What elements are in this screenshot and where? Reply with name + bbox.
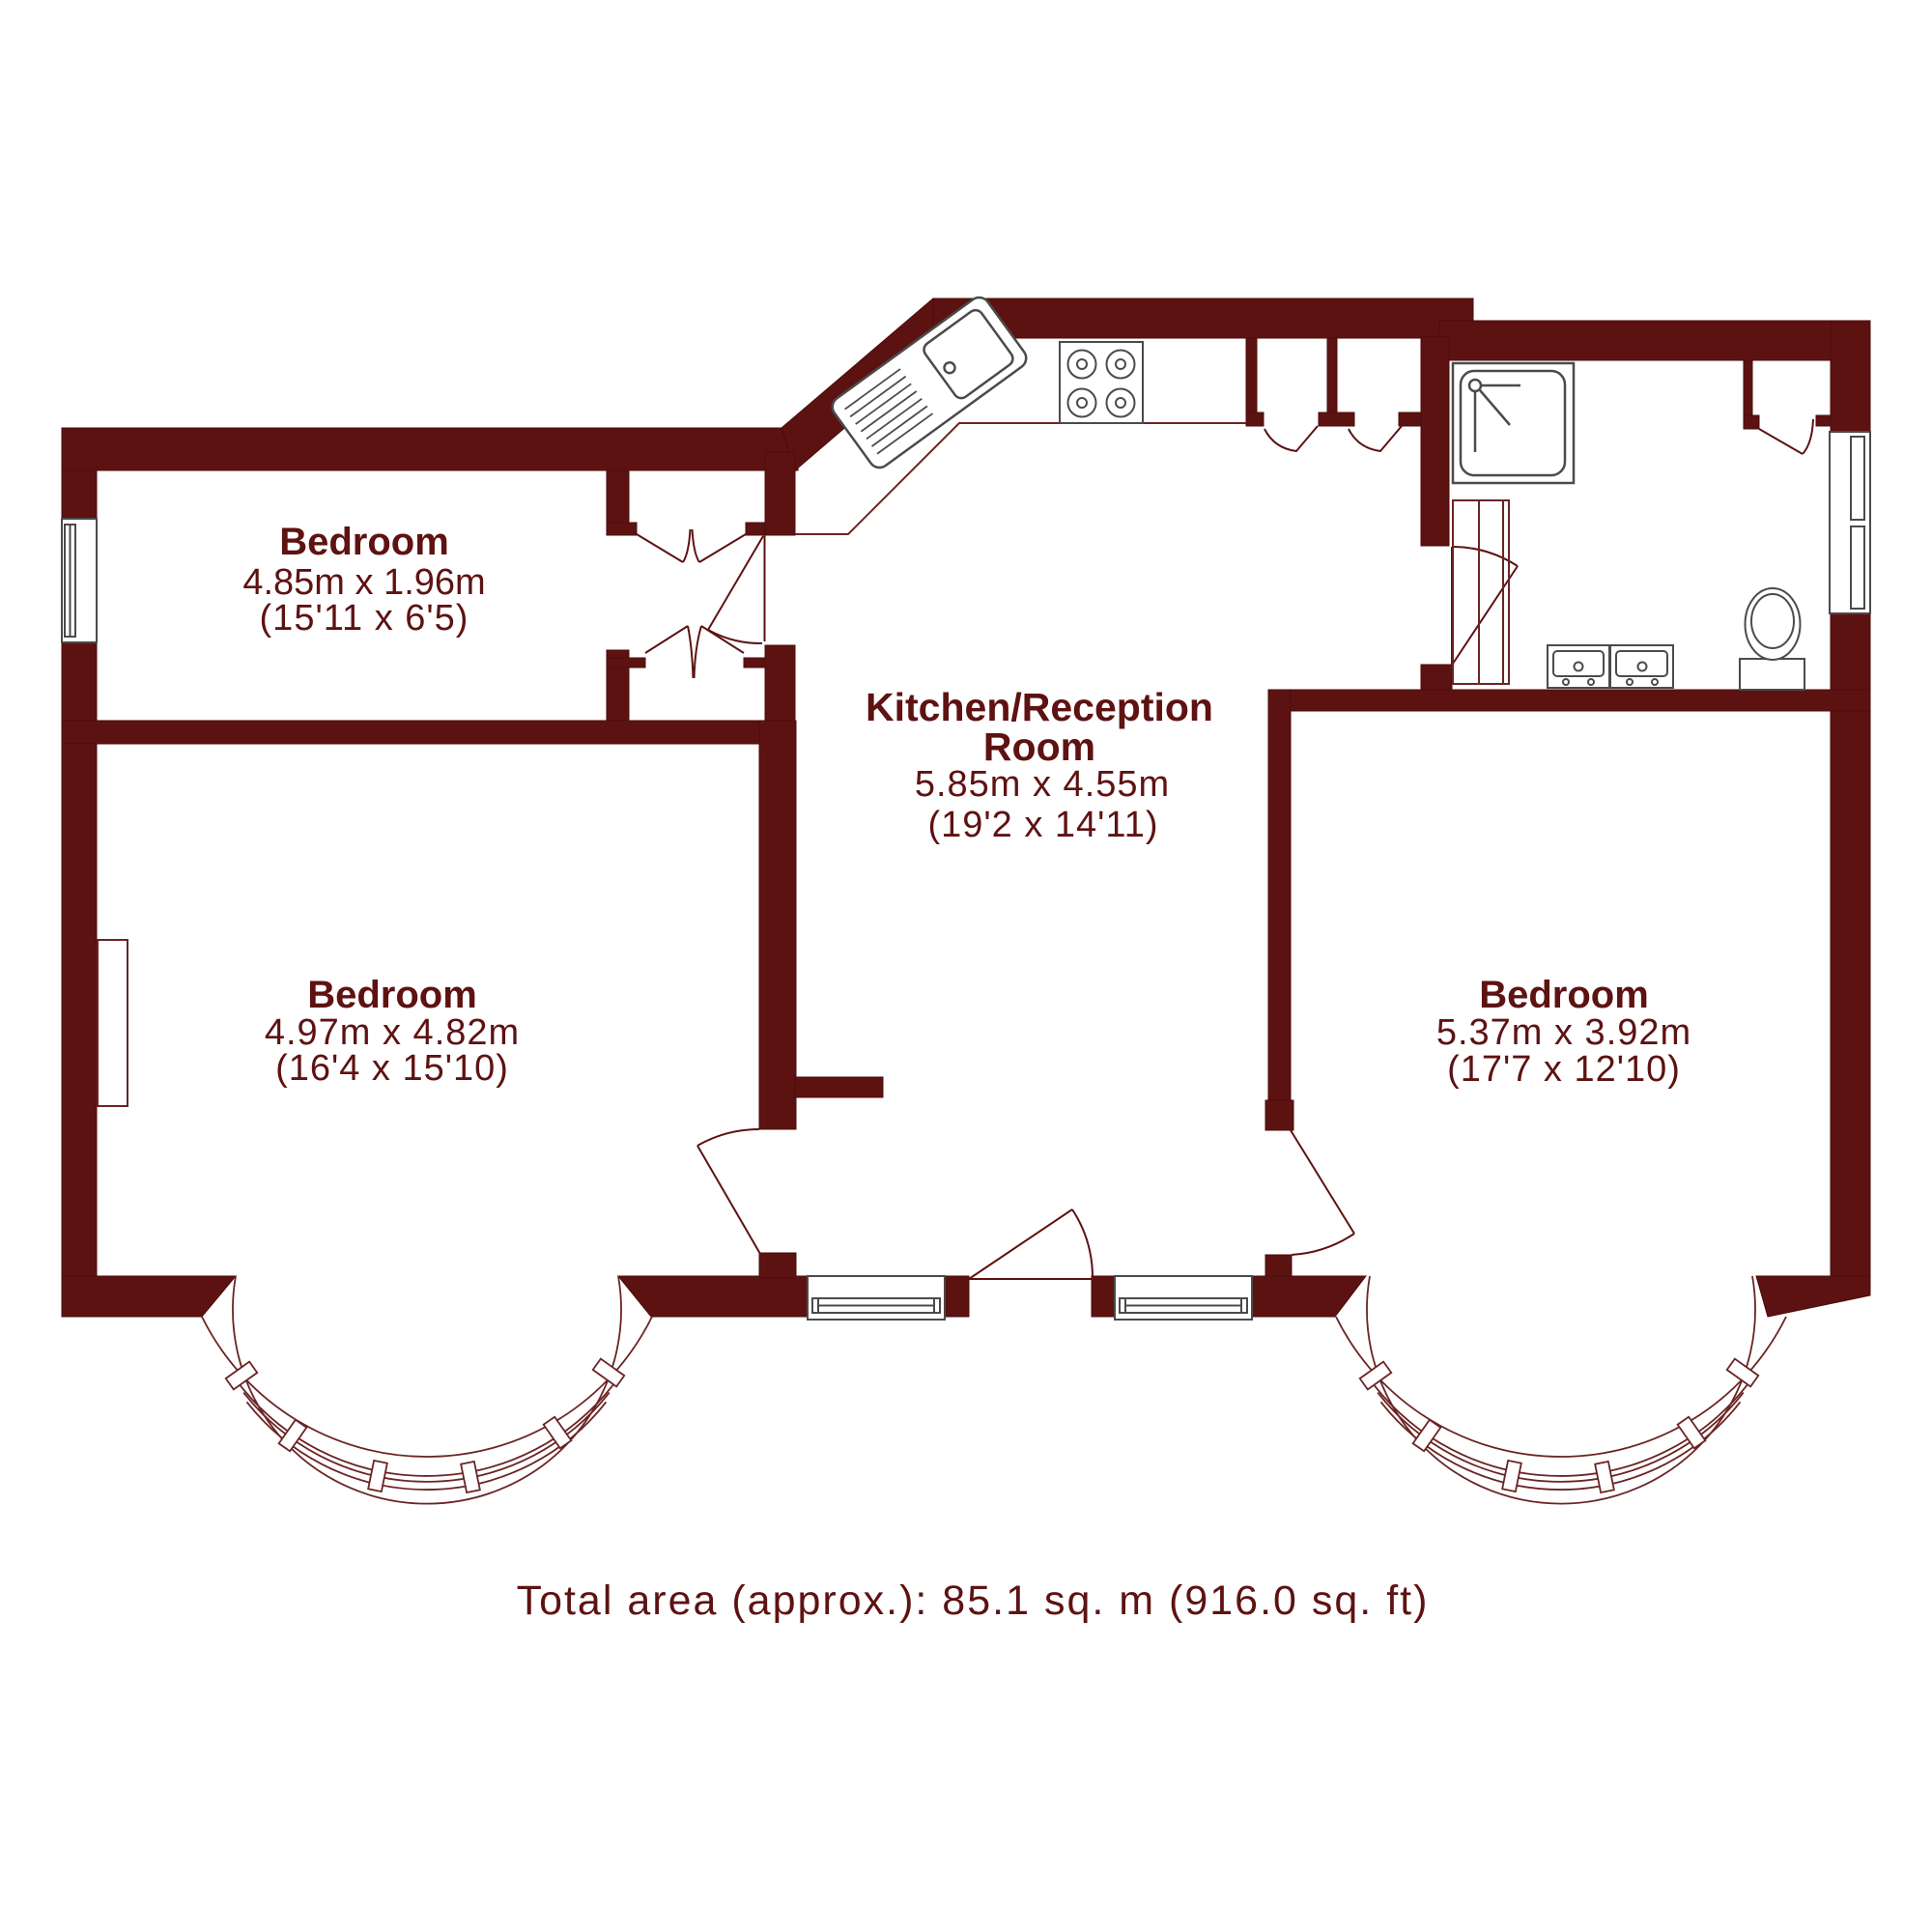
- svg-text:4.85m x 1.96m: 4.85m x 1.96m: [242, 562, 485, 603]
- svg-text:(15'11 x 6'5): (15'11 x 6'5): [260, 598, 469, 639]
- svg-text:Bedroom: Bedroom: [279, 521, 449, 563]
- svg-text:(16'4 x 15'10): (16'4 x 15'10): [275, 1048, 509, 1089]
- svg-text:Kitchen/Reception: Kitchen/Reception: [866, 685, 1213, 729]
- svg-text:Room: Room: [983, 724, 1095, 769]
- svg-text:(19'2 x 14'11): (19'2 x 14'11): [927, 805, 1158, 845]
- svg-text:5.85m x 4.55m: 5.85m x 4.55m: [915, 764, 1170, 805]
- svg-text:5.37m x 3.92m: 5.37m x 3.92m: [1436, 1012, 1691, 1053]
- svg-text:4.97m x 4.82m: 4.97m x 4.82m: [265, 1012, 520, 1053]
- svg-text:Bedroom: Bedroom: [1479, 974, 1649, 1016]
- svg-text:Bedroom: Bedroom: [307, 974, 477, 1016]
- svg-text:(17'7 x 12'10): (17'7 x 12'10): [1447, 1049, 1681, 1090]
- svg-text:Total area (approx.): 85.1 sq.: Total area (approx.): 85.1 sq. m (916.0 …: [517, 1577, 1430, 1624]
